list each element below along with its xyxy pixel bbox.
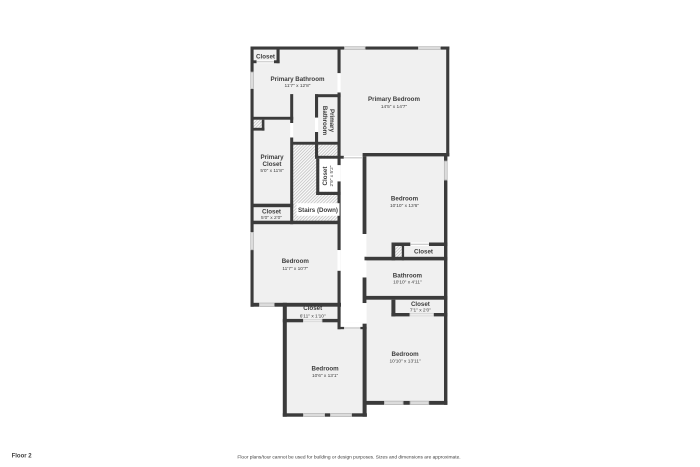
svg-text:10'6" x 13'1": 10'6" x 13'1" (312, 373, 339, 379)
svg-text:Closet: Closet (262, 209, 281, 216)
svg-text:11'7" x 12'8": 11'7" x 12'8" (285, 83, 311, 89)
svg-text:Floor plans/tour cannot be use: Floor plans/tour cannot be used for buil… (237, 455, 460, 461)
svg-text:Closet: Closet (322, 167, 329, 186)
svg-text:Stairs (Down): Stairs (Down) (298, 207, 338, 214)
svg-text:Bathroom: Bathroom (393, 272, 423, 279)
svg-text:7'1" x 2'0": 7'1" x 2'0" (410, 308, 431, 314)
svg-text:Closet: Closet (414, 249, 433, 256)
svg-text:Bedroom: Bedroom (391, 195, 419, 202)
svg-text:5'0" x 11'8": 5'0" x 11'8" (260, 168, 284, 174)
svg-text:Primary Bedroom: Primary Bedroom (368, 96, 420, 103)
svg-text:Bedroom: Bedroom (282, 258, 310, 265)
svg-text:2'9" x 5'2": 2'9" x 5'2" (329, 165, 335, 186)
svg-text:Bathroom: Bathroom (321, 106, 328, 136)
svg-text:Bedroom: Bedroom (312, 365, 340, 372)
svg-text:Closet: Closet (411, 301, 430, 308)
svg-text:Closet: Closet (303, 305, 322, 312)
svg-text:Primary: Primary (328, 109, 335, 133)
svg-text:14'5" x 14'7": 14'5" x 14'7" (381, 104, 408, 110)
svg-text:10'10" x 13'6": 10'10" x 13'6" (390, 203, 419, 209)
svg-text:Bedroom: Bedroom (392, 351, 420, 358)
svg-text:Closet: Closet (263, 161, 282, 168)
svg-text:Closet: Closet (256, 54, 275, 61)
svg-text:10'10" x 13'11": 10'10" x 13'11" (389, 358, 421, 364)
svg-text:Primary Bathroom: Primary Bathroom (271, 76, 325, 83)
svg-text:10'10" x 4'11": 10'10" x 4'11" (393, 279, 422, 285)
svg-text:5'0" x 2'0": 5'0" x 2'0" (261, 215, 282, 221)
svg-text:Floor 2: Floor 2 (12, 454, 33, 460)
svg-text:6'11" x 1'10": 6'11" x 1'10" (300, 313, 326, 319)
svg-text:11'7" x 10'7": 11'7" x 10'7" (282, 266, 308, 272)
